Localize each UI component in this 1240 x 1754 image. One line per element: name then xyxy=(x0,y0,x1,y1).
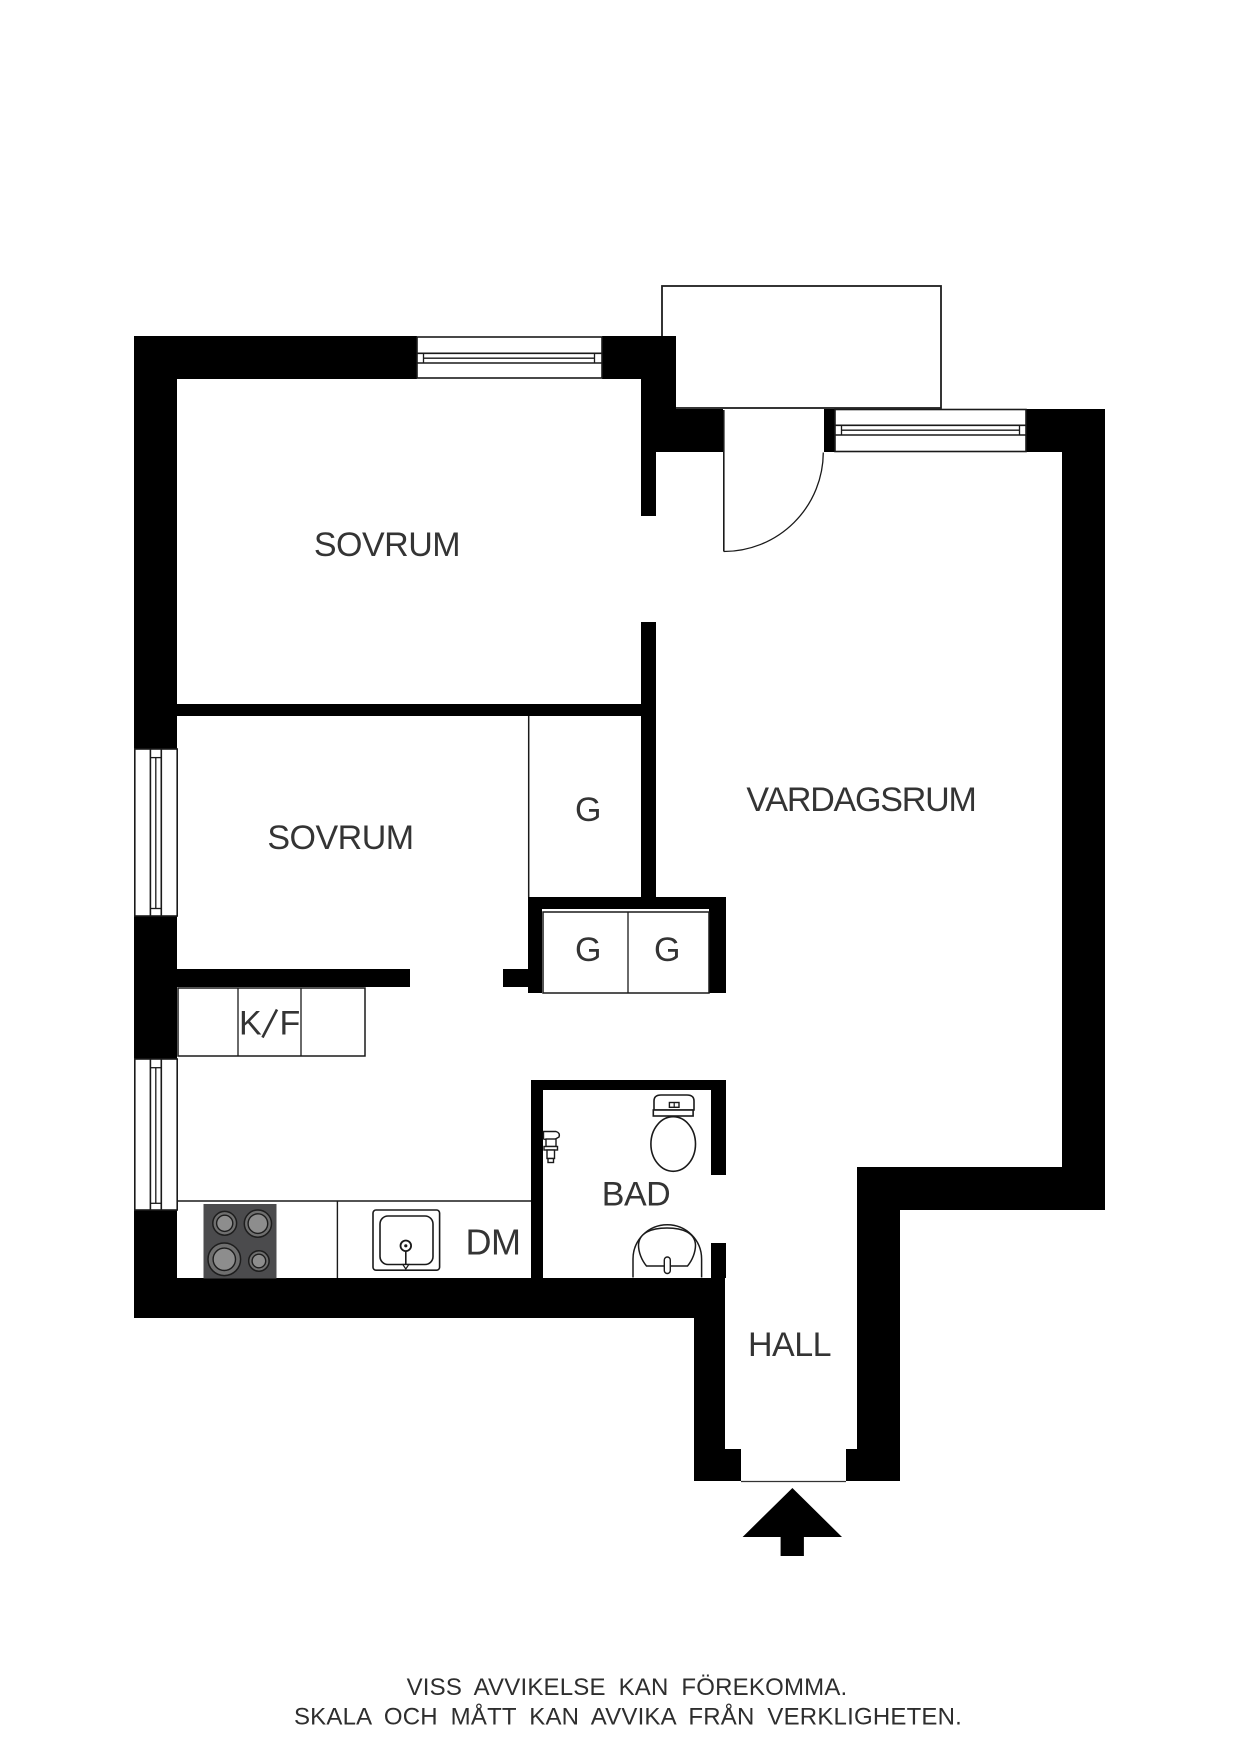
svg-text:SKALA OCH MÅTT KAN AVVIKA FRÅN: SKALA OCH MÅTT KAN AVVIKA FRÅN VERKLIGHE… xyxy=(294,1703,962,1731)
svg-text:F: F xyxy=(280,1005,300,1043)
svg-text:DM: DM xyxy=(466,1222,521,1263)
svg-text:G: G xyxy=(575,931,601,969)
svg-text:VARDAGSRUM: VARDAGSRUM xyxy=(746,781,975,819)
svg-text:SOVRUM: SOVRUM xyxy=(267,819,413,857)
svg-text:BAD: BAD xyxy=(602,1176,670,1214)
svg-text:G: G xyxy=(654,931,680,969)
svg-text:K: K xyxy=(239,1005,262,1043)
svg-text:VISS AVVIKELSE KAN FÖREKOMMA.: VISS AVVIKELSE KAN FÖREKOMMA. xyxy=(407,1674,848,1701)
svg-text:HALL: HALL xyxy=(748,1326,831,1364)
svg-text:G: G xyxy=(575,791,601,829)
svg-text:SOVRUM: SOVRUM xyxy=(314,526,460,564)
